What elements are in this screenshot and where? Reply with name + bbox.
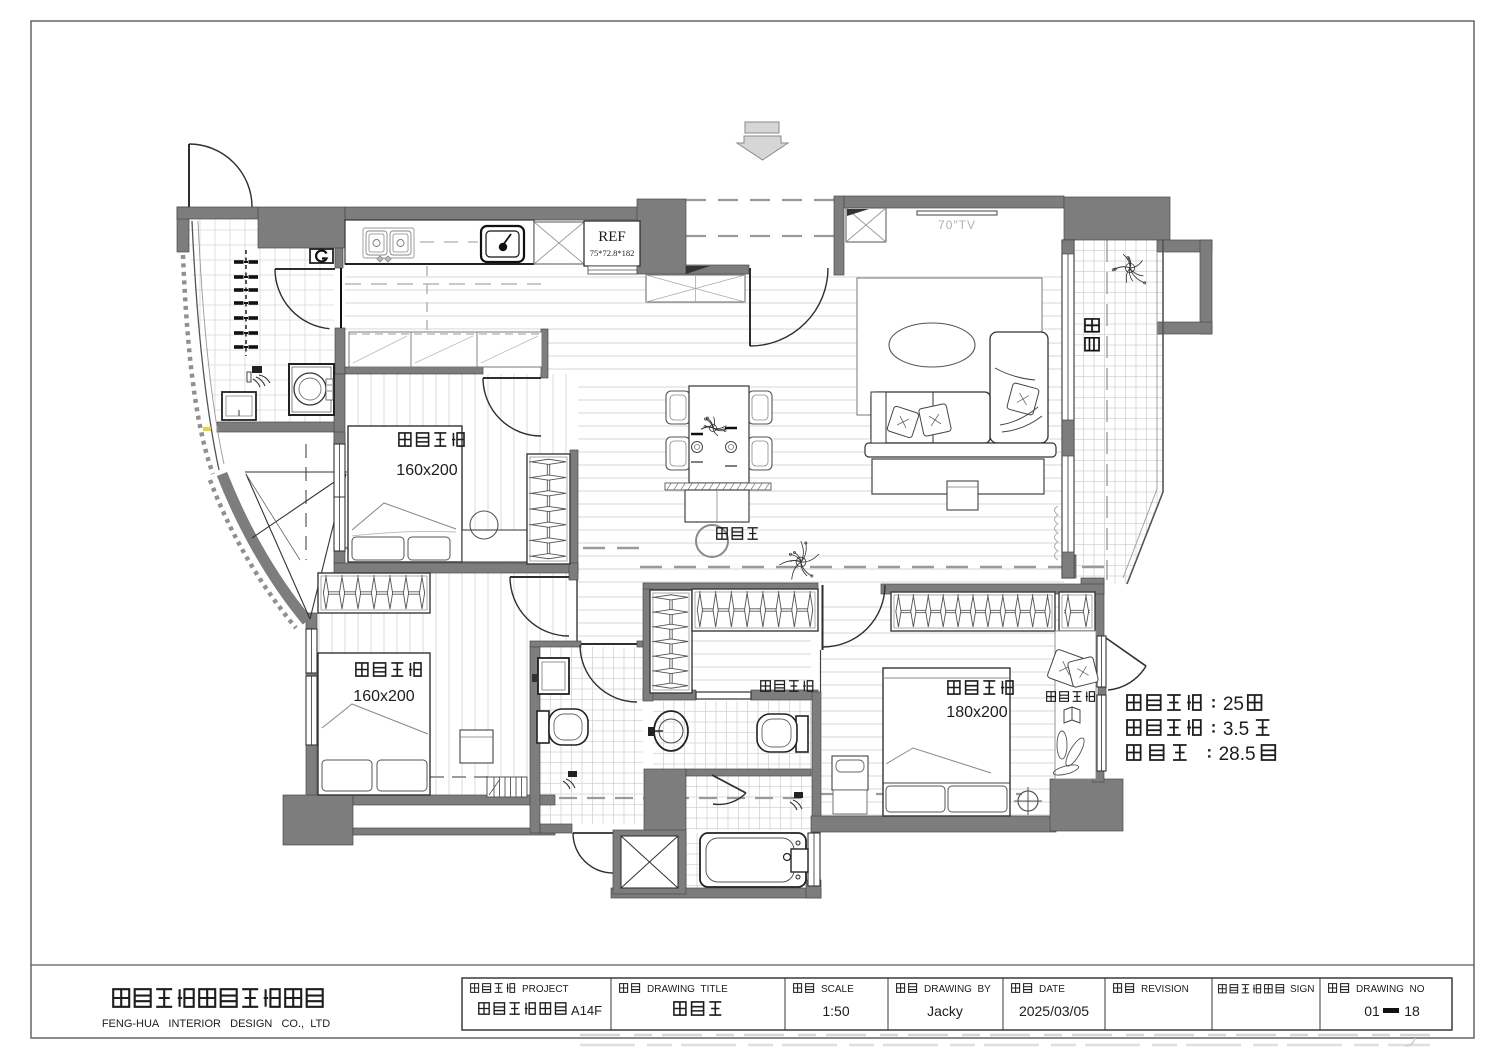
svg-text:A14F: A14F <box>571 1003 602 1018</box>
svg-text:2025/03/05: 2025/03/05 <box>1019 1003 1089 1019</box>
svg-text:01: 01 <box>1364 1003 1380 1019</box>
svg-text:DRAWING NO: DRAWING NO <box>1356 984 1425 995</box>
svg-text:18: 18 <box>1404 1003 1420 1019</box>
svg-text:DATE: DATE <box>1039 984 1065 995</box>
svg-text:REVISION: REVISION <box>1141 984 1189 995</box>
svg-text:REF: REF <box>598 229 626 245</box>
svg-text:28.5: 28.5 <box>1219 744 1256 765</box>
svg-text:180x200: 180x200 <box>946 704 1007 721</box>
svg-text:Jacky: Jacky <box>927 1003 963 1019</box>
svg-text:1:50: 1:50 <box>822 1003 849 1019</box>
svg-text:DRAWING BY: DRAWING BY <box>924 984 991 995</box>
svg-text:SCALE: SCALE <box>821 984 854 995</box>
svg-text:160x200: 160x200 <box>396 462 457 479</box>
svg-text:160x200: 160x200 <box>353 688 414 705</box>
svg-text:3.5: 3.5 <box>1223 719 1249 740</box>
svg-text:SIGN: SIGN <box>1290 984 1314 995</box>
svg-text:FENG-HUA INTERIOR DESIGN: FENG-HUA INTERIOR DESIGN CO., LTD <box>102 1018 330 1030</box>
svg-text:DRAWING TITLE: DRAWING TITLE <box>647 984 728 995</box>
svg-text:25: 25 <box>1223 694 1244 715</box>
svg-text:70″TV: 70″TV <box>938 218 976 232</box>
svg-text:PROJECT: PROJECT <box>522 984 569 995</box>
svg-text:75*72.8*182: 75*72.8*182 <box>590 248 635 258</box>
